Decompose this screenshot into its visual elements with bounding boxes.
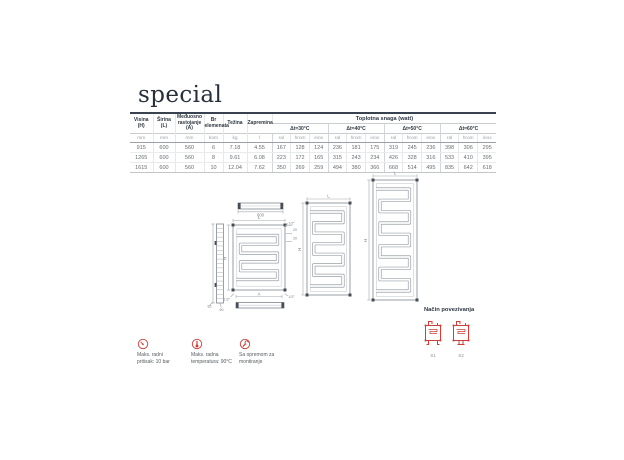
length-dimension-label: L [394, 171, 397, 176]
offset-dimension-label-1: 20 [293, 228, 297, 232]
height-dimension-label: H [297, 248, 302, 251]
top-view-drawing: 600 [238, 203, 283, 218]
feature-caption-line: pritisak: 10 bar [137, 359, 189, 366]
thermometer-icon [191, 338, 203, 350]
wrench-icon [239, 338, 251, 350]
feature-caption-line: montiranje [239, 359, 291, 366]
catalog-page: special Visina (H) Širina (L) Međuosno r… [0, 0, 624, 460]
length-dimension-label: L [258, 215, 261, 220]
connections-title: Način povezivanja [424, 307, 474, 313]
feature-caption-line: Maks. radni [137, 352, 189, 359]
connection-diagram-s2: S2 [449, 319, 473, 358]
feature-caption-line: temperatura: 90°C [191, 359, 243, 366]
radiator-front-view-915: L H 1/2" 20 20 A 1/2" [223, 215, 298, 302]
connection-scheme-icon [422, 319, 444, 347]
technical-drawings: 85 60 600 L H [0, 0, 624, 460]
thread-dimension-label-left: 1/2" [224, 298, 231, 302]
feature-max-pressure: Maks. radni pritisak: 10 bar [137, 338, 189, 365]
connection-label: S1 [421, 353, 445, 358]
radiator-front-view-1265: L H [297, 194, 352, 297]
bottom-view-drawing [236, 303, 284, 309]
feature-mounting-kit: Sa opremom za montiranje [239, 338, 291, 365]
gauge-icon [137, 338, 149, 350]
side-view-drawing: 85 60 [208, 224, 224, 312]
connection-diagram-s1: S1 [421, 319, 445, 358]
axis-dimension-label: A [258, 291, 261, 296]
bracket-dimension-label: 60 [220, 308, 224, 312]
connection-label: S2 [449, 353, 473, 358]
radiator-front-view-1615: L H [363, 171, 419, 302]
feature-max-temperature: Maks. radna temperatura: 90°C [191, 338, 243, 365]
thread-dimension-label-right: 1/2" [289, 295, 296, 299]
connection-scheme-icon [450, 319, 472, 347]
height-dimension-label: H [363, 239, 368, 242]
depth-dimension-label: 85 [208, 305, 212, 309]
thread-dimension-label-top: 1/2" [289, 222, 296, 226]
feature-caption-line: Sa opremom za [239, 352, 291, 359]
length-dimension-label: L [327, 194, 330, 199]
height-dimension-label: H [223, 257, 228, 260]
feature-caption-line: Maks. radna [191, 352, 243, 359]
offset-dimension-label-2: 20 [293, 237, 297, 241]
